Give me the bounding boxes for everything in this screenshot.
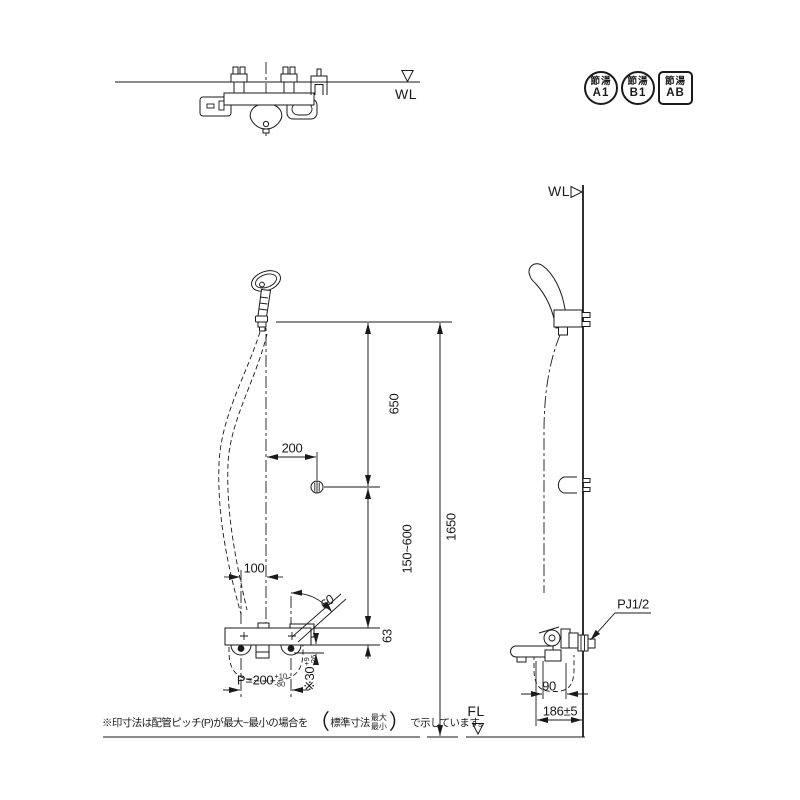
left-supply-flange <box>231 67 247 93</box>
dim-half-pitch: 100 <box>244 561 265 576</box>
connection-size-label: PJ1/2 <box>617 597 649 612</box>
wall-line-label-top: WL <box>395 86 417 102</box>
pj-leader <box>591 613 652 640</box>
water-saving-badge-ab: 節湯 AB <box>658 71 693 105</box>
dim-overall-height: 1650 <box>444 513 459 541</box>
pitch-tolerance: +10 -80 <box>274 673 287 688</box>
footnote: ※印寸法は配管ピッチ(P)が最大~最小の場合を （ 標準寸法 最大 最小 ） で… <box>102 712 488 733</box>
wall-level-triangle-icon <box>402 71 413 82</box>
dim-wall-to-center: 90 <box>542 679 556 694</box>
wall-level-triangle-icon <box>571 187 582 198</box>
water-saving-badge-a1: 節湯 A1 <box>584 71 618 105</box>
hanger-holder <box>256 316 268 322</box>
spout-outlet <box>256 645 269 652</box>
dim-hook-offset: 200 <box>282 441 303 456</box>
hanger-bracket-side <box>554 310 582 327</box>
wall-union-nut <box>578 635 588 651</box>
front-view <box>219 267 452 736</box>
wall-line-label-side: WL <box>548 183 570 199</box>
dim-wall-to-spout: 186±5 <box>543 704 578 719</box>
water-saving-badge-b1: 節湯 B1 <box>621 71 655 105</box>
dim-head-to-hook: 650 <box>387 394 402 415</box>
faucet-body-plan <box>224 93 314 105</box>
dim-hook-range: 150~600 <box>400 525 415 574</box>
top-view <box>115 62 420 136</box>
leg-offset-tolerance: +9 -26 <box>303 655 318 666</box>
hose-hook <box>311 481 323 493</box>
valve-body <box>225 628 311 645</box>
hose-hook-side <box>558 477 590 493</box>
dim-pipe-pitch: P=200 +10 -80 <box>237 673 287 688</box>
right-supply-flange <box>281 67 297 93</box>
technical-drawing-canvas: WL WL FL PJ1/2 200 650 150~600 1650 63 1… <box>0 0 800 800</box>
hose-centerline <box>544 335 560 593</box>
footnote-max-min: 最大 最小 <box>371 714 387 731</box>
side-view <box>473 185 652 737</box>
dim-leg-offset: ※30 +9 -26 <box>302 655 318 691</box>
dim-body-to-leg: 63 <box>380 629 395 643</box>
